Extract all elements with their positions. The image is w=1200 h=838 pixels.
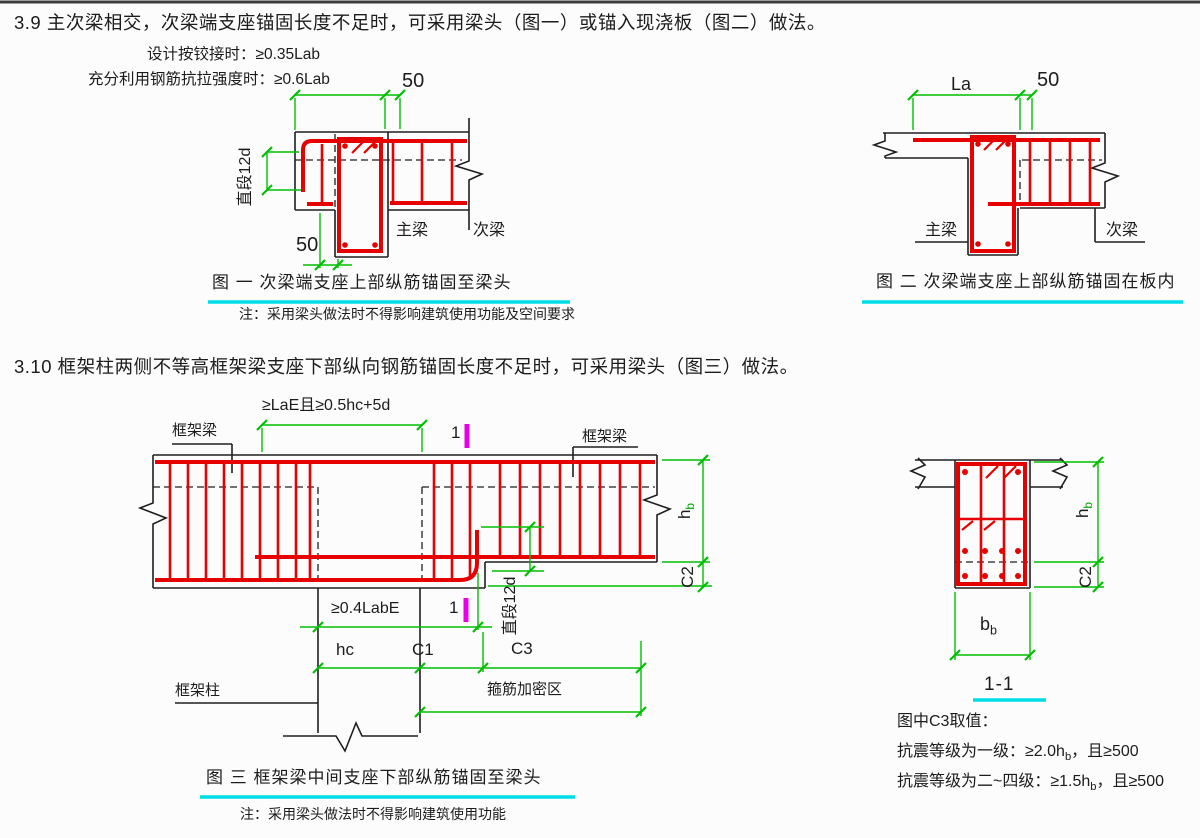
fig1-dim-50-head: 50 xyxy=(296,234,318,257)
fig1-dim-50-top: 50 xyxy=(402,70,424,93)
fig2-dim-la: La xyxy=(951,74,971,95)
fig3-dim-top-anchor: ≥LaE且≥0.5hc+5d xyxy=(262,397,390,415)
fig3-caption: 图 三 框架梁中间支座下部纵筋锚固至梁头 xyxy=(206,768,541,788)
fig2-caption: 图 二 次梁端支座上部纵筋锚固在板内 xyxy=(876,272,1175,292)
heading-3-10: 3.10 框架柱两侧不等高框架梁支座下部纵向钢筋锚固长度不足时，可采用梁头（图三… xyxy=(14,356,799,377)
c3-line1-pre: 抗震等级为一级：≥2.0h xyxy=(897,743,1065,760)
stirrup-box-fig2 xyxy=(972,137,1014,251)
s11-dim-bb: bb xyxy=(980,614,997,638)
fig3-dim-c1: C1 xyxy=(412,640,434,660)
fig2-label-main-beam: 主梁 xyxy=(925,222,957,240)
fig3-dim-04labe: ≥0.4LabE xyxy=(331,600,399,618)
stirrup-box-fig1 xyxy=(339,139,381,251)
concrete-outlines xyxy=(140,118,1145,751)
fig3-section-mark-top: 1 xyxy=(451,423,460,443)
fig1-caption: 图 一 次梁端支座上部纵筋锚固至梁头 xyxy=(212,273,511,293)
fig1-annotation-full-strength: 充分利用钢筋抗拉强度时：≥0.6Lab xyxy=(88,71,330,89)
c3-line2-post: ，且≥500 xyxy=(1097,773,1164,790)
fig2-label-secondary-beam: 次梁 xyxy=(1106,222,1138,240)
fig3-dim-hc: hc xyxy=(336,640,354,660)
heading-3-9: 3.9 主次梁相交，次梁端支座锚固长度不足时，可采用梁头（图一）或锚入现浇板（图… xyxy=(14,12,826,33)
fig3-dim-hb-sub: b xyxy=(683,503,697,510)
s11-dim-hb: hb xyxy=(1073,502,1095,518)
c3-line2-pre: 抗震等级为二~四级：≥1.5h xyxy=(897,773,1090,790)
s11-dim-c2: C2 xyxy=(1076,566,1096,588)
c3-line1-post: ，且≥500 xyxy=(1071,743,1138,760)
fig3-dim-c3: C3 xyxy=(511,639,533,659)
fig1-label-main-beam: 主梁 xyxy=(396,222,428,240)
c3-note-title: 图中C3取值： xyxy=(897,713,997,731)
s11-dim-bb-main: b xyxy=(980,614,990,634)
s11-dim-bb-sub: b xyxy=(990,624,997,638)
fig3-label-frame-column: 框架柱 xyxy=(175,682,220,699)
s11-title: 1-1 xyxy=(984,674,1014,696)
fig3-dim-c2: C2 xyxy=(678,566,698,588)
c3-note-line2: 抗震等级为二~四级：≥1.5hb，且≥500 xyxy=(897,773,1164,794)
fig1-annotation-hinged: 设计按铰接时：≥0.35Lab xyxy=(147,46,320,64)
fig3-dim-straight-12d: 直段12d xyxy=(496,577,520,636)
fig3-label-stirrup-zone: 箍筋加密区 xyxy=(487,681,562,698)
drawing-sheet: 3.9 主次梁相交，次梁端支座锚固长度不足时，可采用梁头（图一）或锚入现浇板（图… xyxy=(0,0,1200,838)
fig3-label-frame-beam-right: 框架梁 xyxy=(582,428,627,445)
fig1-label-secondary-beam: 次梁 xyxy=(473,222,505,240)
fig3-label-frame-beam-left: 框架梁 xyxy=(172,422,217,439)
fig3-note: 注：采用梁头做法时不得影响建筑使用功能 xyxy=(240,806,506,822)
s11-dim-hb-sub: b xyxy=(1081,502,1095,509)
fig1-dim-straight-12d: 直段12d xyxy=(231,148,255,207)
fig2-dim-50: 50 xyxy=(1037,69,1059,92)
cad-linework xyxy=(0,0,1200,838)
fig3-dim-hb-main: h xyxy=(675,510,694,519)
fig3-dim-hb: hb xyxy=(675,503,697,519)
section-cut-marks xyxy=(466,424,467,622)
fig3-section-mark-bottom: 1 xyxy=(449,598,458,618)
fig1-note: 注：采用梁头做法时不得影响建筑使用功能及空间要求 xyxy=(239,306,575,322)
c3-note-line1: 抗震等级为一级：≥2.0hb，且≥500 xyxy=(897,743,1139,764)
s11-dim-hb-main: h xyxy=(1073,509,1092,518)
